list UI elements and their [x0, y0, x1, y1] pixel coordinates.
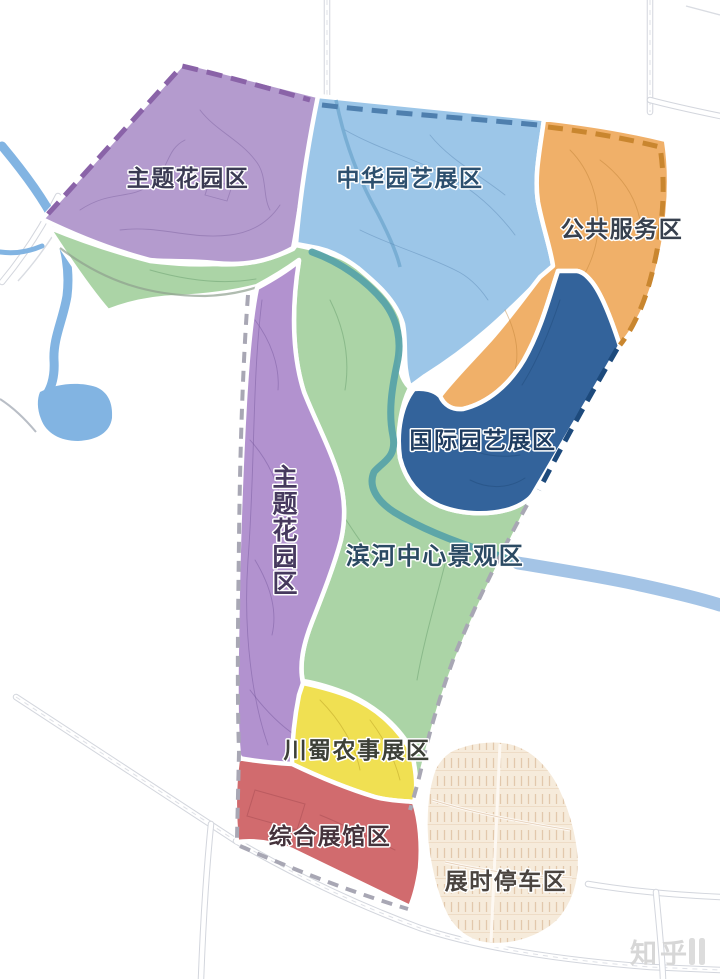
watermark-text: 知乎	[630, 939, 690, 969]
lake	[38, 384, 112, 441]
zone-label-public-service: 公共服务区	[561, 216, 684, 242]
zone-label-sichuan-agricultural-exhibition: 川蜀农事展区	[284, 737, 431, 763]
zone-label-international-horticulture-exhibition: 国际园艺展区	[410, 427, 557, 453]
zones	[42, 62, 669, 945]
zone-expo-parking	[425, 740, 580, 945]
zone-label-china-horticulture-exhibition: 中华园艺展区	[337, 165, 484, 191]
watermark: 知乎	[630, 938, 705, 969]
zone-label-theme-garden-west: 主题花园区	[269, 464, 298, 597]
zone-label-expo-parking: 展时停车区	[445, 868, 568, 894]
zone-label-theme-garden-north: 主题花园区	[127, 165, 250, 191]
watermark-logo-mark	[689, 938, 695, 965]
zone-label-riverside-central-landscape: 滨河中心景观区	[346, 542, 525, 570]
watermark-logo-mark	[699, 938, 705, 965]
zone-label-comprehensive-exhibition-hall: 综合展馆区	[269, 823, 392, 849]
east-river	[518, 563, 720, 605]
zoning-map: 主题花园区 中华园艺展区 公共服务区 国际园艺展区 滨河中心景观区 主题花园区 …	[0, 0, 720, 979]
